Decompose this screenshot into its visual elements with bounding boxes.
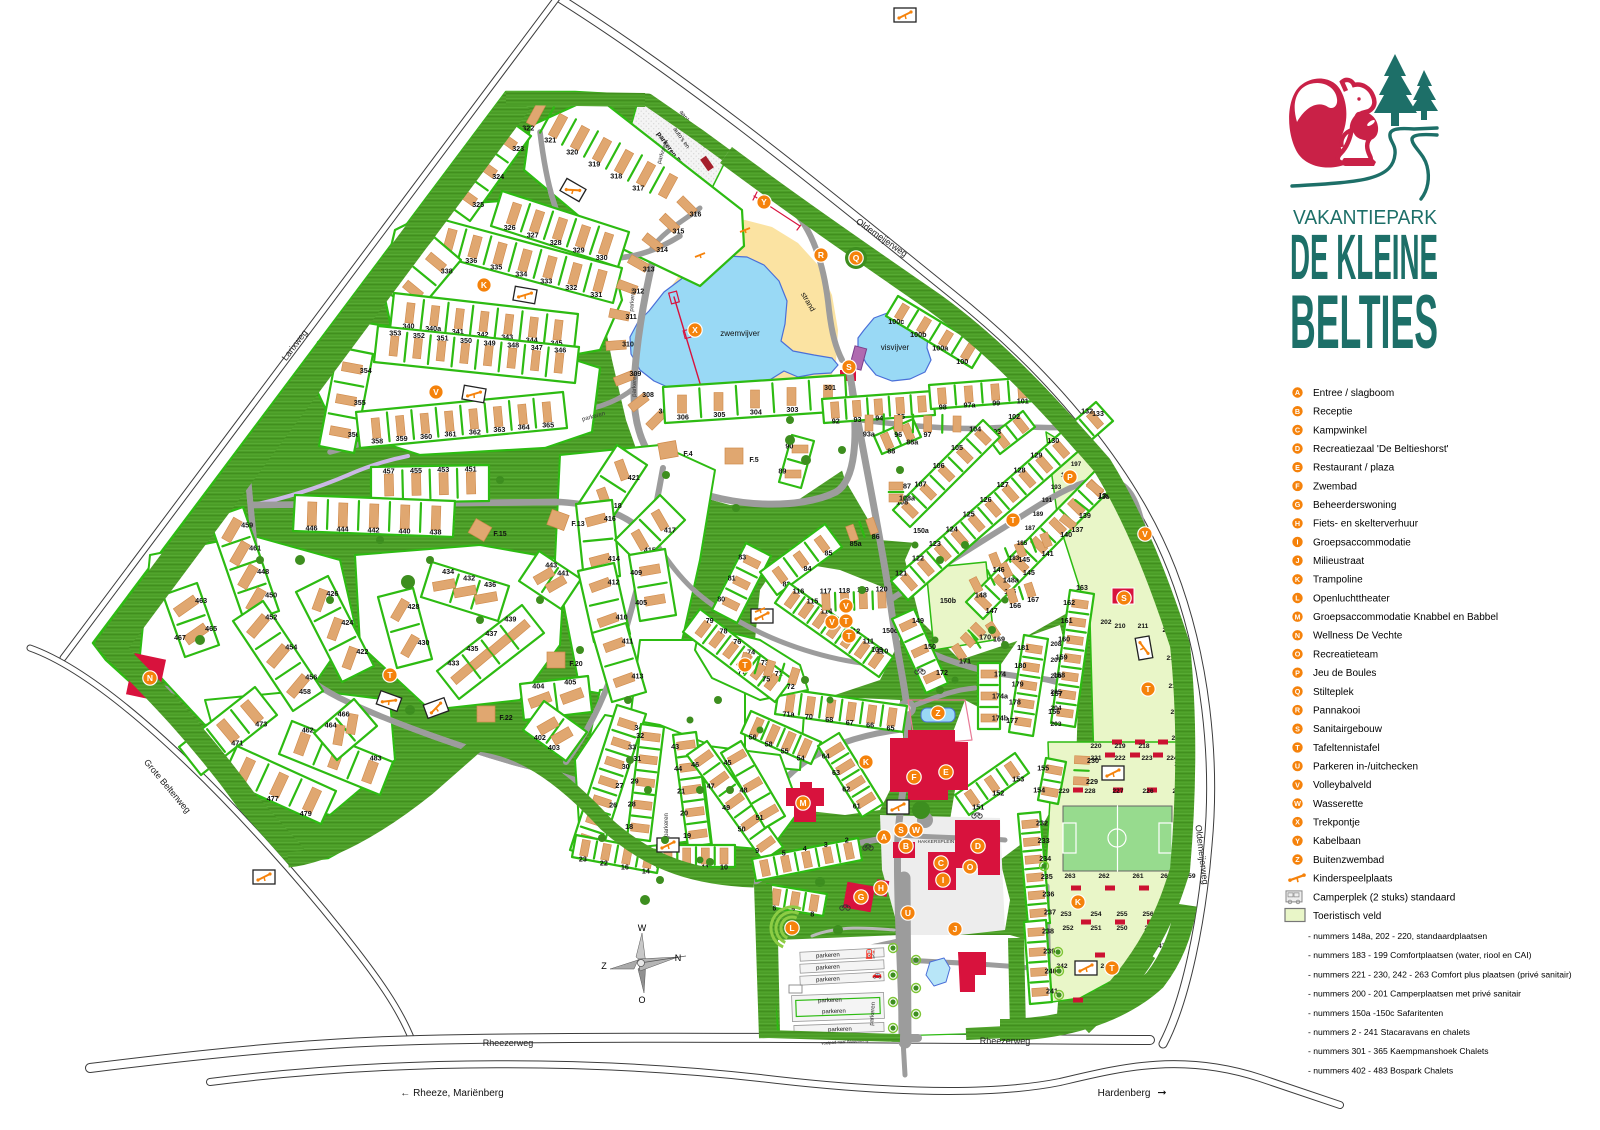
svg-text:80: 80: [717, 595, 725, 604]
svg-text:324: 324: [492, 172, 504, 181]
svg-text:Entree / slagboom: Entree / slagboom: [1313, 388, 1394, 399]
svg-text:75: 75: [762, 675, 770, 684]
svg-text:179: 179: [1012, 679, 1024, 688]
svg-text:33: 33: [628, 743, 636, 752]
svg-text:93: 93: [854, 415, 862, 424]
svg-text:P: P: [1295, 668, 1300, 677]
svg-text:78: 78: [720, 626, 728, 635]
svg-text:178: 178: [1009, 698, 1021, 707]
svg-text:464: 464: [325, 721, 337, 730]
svg-text:Sanitairgebouw: Sanitairgebouw: [1313, 724, 1383, 735]
svg-text:328: 328: [550, 238, 562, 247]
svg-text:155: 155: [1037, 764, 1049, 773]
svg-text:I: I: [1297, 538, 1299, 547]
svg-text:467: 467: [174, 635, 186, 642]
svg-text:333: 333: [540, 276, 552, 285]
svg-text:222: 222: [1114, 755, 1125, 762]
svg-text:466: 466: [338, 710, 350, 719]
svg-text:19: 19: [683, 831, 691, 840]
svg-text:411: 411: [622, 637, 634, 646]
svg-text:parkeren: parkeren: [816, 976, 840, 983]
svg-text:Groepsaccommodatie: Groepsaccommodatie: [1313, 537, 1411, 548]
svg-text:Stilteplek: Stilteplek: [1313, 687, 1355, 698]
svg-text:325: 325: [472, 200, 484, 209]
svg-text:162: 162: [1063, 598, 1075, 607]
svg-text:315: 315: [673, 229, 685, 236]
svg-text:403: 403: [548, 743, 560, 752]
svg-text:254: 254: [1090, 911, 1101, 918]
svg-text:107: 107: [915, 480, 927, 489]
svg-text:parkeren: parkeren: [816, 964, 840, 971]
svg-text:16: 16: [621, 862, 629, 871]
svg-text:147: 147: [986, 606, 998, 615]
svg-text:203: 203: [1050, 721, 1061, 728]
svg-text:235: 235: [1041, 872, 1053, 881]
svg-text:115: 115: [807, 597, 819, 606]
svg-text:K: K: [1075, 897, 1082, 907]
svg-text:363: 363: [493, 425, 505, 434]
svg-text:122: 122: [912, 554, 924, 563]
svg-text:E: E: [943, 767, 949, 777]
svg-text:93a: 93a: [863, 430, 876, 439]
svg-text:F.13: F.13: [571, 521, 584, 528]
svg-text:N: N: [147, 673, 153, 683]
svg-text:118: 118: [838, 586, 850, 595]
svg-text:K: K: [863, 757, 870, 767]
svg-text:parkeren: parkeren: [818, 998, 842, 1005]
svg-text:71a: 71a: [783, 709, 796, 718]
svg-text:K: K: [1295, 575, 1301, 584]
svg-text:Jeu de Boules: Jeu de Boules: [1313, 668, 1376, 679]
svg-text:154: 154: [1033, 786, 1045, 795]
svg-text:O: O: [967, 862, 974, 872]
svg-text:97a: 97a: [964, 401, 977, 410]
svg-text:410: 410: [616, 612, 628, 621]
svg-text:- nummers 183 - 199 Comfortpla: - nummers 183 - 199 Comfortplaatsen (wat…: [1308, 950, 1532, 960]
svg-text:H: H: [1295, 519, 1300, 528]
svg-text:145: 145: [1023, 568, 1035, 577]
svg-text:364: 364: [518, 423, 530, 432]
svg-text:255: 255: [1116, 911, 1127, 918]
svg-text:105: 105: [951, 443, 963, 452]
svg-text:170: 170: [979, 633, 991, 642]
svg-text:151: 151: [972, 803, 984, 812]
svg-text:86: 86: [872, 532, 880, 541]
svg-text:108a: 108a: [899, 494, 916, 503]
svg-text:45: 45: [724, 758, 732, 767]
svg-text:348: 348: [507, 341, 519, 350]
svg-text:139: 139: [1079, 511, 1091, 520]
svg-text:127: 127: [997, 480, 1009, 489]
svg-text:220: 220: [1090, 743, 1101, 750]
svg-text:A: A: [1295, 388, 1300, 397]
svg-text:parkeren: parkeren: [632, 373, 639, 397]
svg-text:349: 349: [484, 338, 496, 347]
svg-text:Tafeltennistafel: Tafeltennistafel: [1313, 743, 1380, 754]
svg-text:V: V: [843, 601, 849, 611]
svg-text:94: 94: [875, 414, 883, 423]
svg-text:197: 197: [1071, 461, 1082, 468]
svg-text:Restaurant / plaza: Restaurant / plaza: [1313, 463, 1395, 474]
svg-text:437: 437: [485, 629, 497, 638]
svg-text:Trampoline: Trampoline: [1313, 575, 1363, 586]
svg-text:79: 79: [706, 616, 714, 625]
svg-text:Kinderspeelplaats: Kinderspeelplaats: [1313, 874, 1393, 885]
svg-text:130: 130: [1047, 436, 1059, 445]
svg-text:229: 229: [1086, 777, 1098, 786]
svg-text:446: 446: [306, 524, 318, 533]
svg-text:Z: Z: [935, 708, 940, 718]
svg-text:355: 355: [354, 398, 366, 407]
svg-text:351: 351: [437, 333, 449, 342]
svg-text:- nummers 2 - 241 Stacaravans: - nummers 2 - 241 Stacaravans en chalets: [1308, 1027, 1470, 1037]
svg-text:202: 202: [1100, 619, 1111, 626]
svg-text:T: T: [1010, 515, 1016, 525]
svg-text:T: T: [1295, 743, 1300, 752]
svg-text:306: 306: [677, 413, 689, 422]
svg-text:183: 183: [1009, 555, 1020, 562]
svg-text:2: 2: [845, 836, 849, 845]
svg-text:O: O: [1295, 650, 1301, 659]
svg-text:326: 326: [504, 223, 516, 232]
svg-text:451: 451: [465, 465, 477, 474]
svg-text:320: 320: [566, 148, 578, 157]
svg-text:262: 262: [1098, 873, 1109, 880]
svg-text:X: X: [692, 325, 698, 335]
svg-text:83: 83: [738, 553, 746, 562]
svg-text:F.22: F.22: [499, 715, 512, 722]
svg-text:Y: Y: [1295, 836, 1300, 845]
svg-text:46: 46: [691, 760, 699, 769]
svg-text:329: 329: [573, 245, 585, 254]
svg-text:140: 140: [1060, 530, 1072, 539]
svg-text:Z: Z: [1295, 855, 1300, 864]
svg-text:141: 141: [1042, 549, 1054, 558]
svg-text:174a: 174a: [992, 692, 1009, 701]
svg-text:84: 84: [804, 564, 812, 573]
svg-text:76: 76: [733, 637, 741, 646]
svg-text:458: 458: [299, 689, 311, 696]
svg-text:99: 99: [992, 399, 1000, 408]
svg-text:N: N: [675, 953, 682, 963]
svg-text:Openluchttheater: Openluchttheater: [1313, 593, 1390, 604]
svg-text:439: 439: [504, 614, 516, 623]
svg-text:210: 210: [1114, 623, 1125, 630]
svg-text:362: 362: [469, 427, 481, 436]
svg-text:70: 70: [805, 712, 813, 721]
svg-text:412: 412: [608, 577, 620, 586]
svg-text:237: 237: [1044, 907, 1056, 916]
svg-text:65: 65: [887, 723, 895, 732]
svg-text:50: 50: [738, 824, 746, 833]
svg-text:346: 346: [554, 346, 566, 355]
svg-text:323: 323: [512, 144, 524, 153]
svg-text:409: 409: [630, 568, 642, 577]
svg-text:97: 97: [924, 430, 932, 439]
svg-text:⛽: ⛽: [865, 948, 876, 959]
svg-text:129: 129: [1030, 451, 1042, 460]
svg-text:48: 48: [740, 786, 748, 795]
svg-text:68: 68: [825, 715, 833, 724]
svg-text:U: U: [1295, 762, 1300, 771]
svg-text:465: 465: [205, 624, 217, 633]
svg-text:← Rheeze, Mariënberg: ← Rheeze, Mariënberg: [400, 1088, 503, 1099]
svg-text:161: 161: [1061, 616, 1073, 625]
svg-text:434: 434: [442, 567, 454, 576]
svg-text:W: W: [912, 825, 921, 835]
svg-text:352: 352: [413, 331, 425, 340]
svg-text:58: 58: [765, 740, 773, 749]
svg-text:174b: 174b: [992, 714, 1009, 723]
svg-text:102: 102: [1008, 412, 1020, 421]
svg-text:O: O: [638, 995, 645, 1005]
svg-text:85: 85: [825, 548, 833, 557]
svg-text:456: 456: [305, 673, 317, 682]
svg-text:B: B: [903, 841, 909, 851]
svg-text:100b: 100b: [910, 330, 927, 339]
svg-text:L: L: [789, 923, 794, 933]
svg-text:314: 314: [656, 247, 668, 254]
svg-text:405: 405: [635, 598, 647, 607]
svg-text:263: 263: [1064, 873, 1075, 880]
svg-text:421: 421: [628, 473, 640, 482]
svg-text:454: 454: [285, 643, 297, 652]
svg-text:206: 206: [1050, 673, 1061, 680]
svg-text:Beheerderswoning: Beheerderswoning: [1313, 500, 1396, 511]
svg-text:317: 317: [632, 184, 644, 193]
svg-text:204: 204: [1050, 705, 1061, 712]
svg-text:Milieustraat: Milieustraat: [1313, 556, 1364, 567]
svg-text:146: 146: [993, 565, 1005, 574]
svg-text:319: 319: [588, 160, 600, 169]
svg-text:433: 433: [447, 658, 459, 667]
svg-text:166: 166: [1009, 601, 1021, 610]
svg-text:221: 221: [1090, 755, 1101, 762]
svg-text:477: 477: [267, 794, 279, 803]
svg-text:360: 360: [420, 432, 432, 441]
svg-text:424: 424: [341, 618, 353, 627]
svg-text:Wasserette: Wasserette: [1313, 799, 1364, 810]
svg-text:Trekpontje: Trekpontje: [1313, 818, 1360, 829]
svg-text:228: 228: [1084, 788, 1095, 795]
svg-text:55: 55: [781, 747, 789, 756]
svg-text:Fiets- en skelterverhuur: Fiets- en skelterverhuur: [1313, 519, 1419, 530]
svg-text:26: 26: [609, 801, 617, 810]
svg-text:438: 438: [430, 528, 442, 537]
svg-text:31: 31: [633, 754, 641, 763]
svg-text:413: 413: [632, 672, 644, 681]
svg-text:Groepsaccommodatie Knabbel en: Groepsaccommodatie Knabbel en Babbel: [1313, 612, 1498, 623]
svg-text:335: 335: [490, 263, 502, 272]
svg-text:Pannakooi: Pannakooi: [1313, 706, 1360, 717]
svg-text:133: 133: [1092, 411, 1104, 418]
svg-text:109: 109: [871, 647, 883, 654]
svg-text:149: 149: [912, 616, 924, 625]
svg-text:🚗: 🚗: [872, 970, 882, 979]
svg-text:441: 441: [557, 569, 569, 578]
svg-text:187: 187: [1025, 525, 1036, 532]
svg-text:T: T: [1109, 963, 1115, 973]
svg-text:117: 117: [820, 587, 832, 596]
svg-text:3: 3: [824, 840, 828, 849]
svg-text:414: 414: [608, 554, 620, 563]
svg-text:125: 125: [963, 510, 975, 519]
svg-text:327: 327: [527, 230, 539, 239]
svg-text:32: 32: [636, 731, 644, 740]
svg-text:123: 123: [929, 539, 941, 548]
svg-text:- nummers 150a -150c Safariten: - nummers 150a -150c Safaritenten: [1308, 1008, 1443, 1018]
svg-text:334: 334: [515, 270, 527, 279]
svg-text:6: 6: [772, 903, 776, 912]
svg-text:Rheezerweg: Rheezerweg: [980, 1036, 1031, 1046]
svg-text:87: 87: [903, 482, 911, 491]
svg-text:zwemvijver: zwemvijver: [720, 329, 760, 338]
svg-text:N: N: [1295, 631, 1300, 640]
svg-text:457: 457: [383, 467, 395, 476]
svg-text:250: 250: [1116, 925, 1127, 932]
svg-text:417: 417: [664, 525, 676, 534]
svg-text:180: 180: [1014, 661, 1026, 670]
svg-text:226: 226: [1142, 788, 1153, 795]
svg-text:331: 331: [590, 290, 602, 299]
svg-text:96: 96: [894, 430, 902, 439]
svg-text:Kampwinkel: Kampwinkel: [1313, 425, 1367, 436]
svg-text:428: 428: [408, 602, 420, 611]
svg-text:361: 361: [445, 430, 457, 439]
svg-text:Y: Y: [761, 197, 767, 207]
svg-text:208: 208: [1050, 641, 1061, 648]
svg-text:Camperplek (2 stuks) standaard: Camperplek (2 stuks) standaard: [1313, 892, 1455, 903]
svg-text:321: 321: [544, 136, 556, 145]
svg-text:365: 365: [542, 420, 554, 429]
svg-text:455: 455: [410, 466, 422, 475]
svg-text:150b: 150b: [940, 598, 956, 605]
svg-text:28: 28: [628, 799, 636, 808]
svg-text:Toeristisch veld: Toeristisch veld: [1313, 911, 1381, 922]
svg-text:359: 359: [396, 434, 408, 443]
svg-text:233: 233: [1038, 836, 1050, 845]
svg-text:261: 261: [1132, 873, 1143, 880]
svg-text:Hardenberg: Hardenberg: [1098, 1088, 1151, 1099]
svg-text:F.15: F.15: [493, 531, 506, 538]
svg-text:S: S: [846, 362, 852, 372]
svg-text:V: V: [1142, 529, 1148, 539]
svg-text:100c: 100c: [888, 317, 904, 326]
svg-text:M: M: [1295, 612, 1301, 621]
svg-text:P: P: [1067, 472, 1073, 482]
svg-text:56: 56: [749, 733, 757, 742]
svg-text:124: 124: [946, 524, 958, 533]
svg-text:I: I: [942, 875, 944, 885]
svg-text:116: 116: [793, 587, 805, 596]
svg-text:C: C: [938, 858, 944, 868]
svg-text:S: S: [1295, 724, 1300, 733]
svg-text:51: 51: [756, 813, 764, 822]
svg-text:88a: 88a: [906, 438, 919, 447]
svg-text:185: 185: [1017, 540, 1028, 547]
svg-text:V: V: [829, 617, 835, 627]
svg-text:A: A: [881, 832, 887, 842]
svg-text:416: 416: [604, 514, 616, 523]
svg-text:450: 450: [265, 590, 277, 599]
svg-text:Q: Q: [853, 253, 860, 263]
svg-text:HAKKERSPLEIN: HAKKERSPLEIN: [918, 839, 955, 845]
svg-text:223: 223: [1141, 755, 1152, 762]
svg-text:M: M: [799, 798, 806, 808]
svg-text:137: 137: [1071, 525, 1083, 534]
svg-text:85a: 85a: [850, 539, 863, 548]
svg-text:120: 120: [876, 585, 888, 594]
svg-text:332: 332: [565, 283, 577, 292]
svg-text:444: 444: [337, 525, 349, 534]
svg-text:219: 219: [1114, 743, 1125, 750]
svg-text:23: 23: [579, 854, 587, 863]
svg-text:148: 148: [975, 590, 987, 599]
svg-text:98: 98: [939, 403, 947, 412]
svg-text:X: X: [1295, 818, 1300, 827]
svg-text:H: H: [878, 883, 884, 893]
svg-text:J: J: [953, 924, 958, 934]
svg-text:Wellness De Vechte: Wellness De Vechte: [1313, 631, 1403, 642]
svg-text:167: 167: [1027, 595, 1039, 604]
svg-text:- nummers 148a, 202 - 220, sta: - nummers 148a, 202 - 220, standaardplaa…: [1308, 931, 1487, 941]
svg-text:462: 462: [302, 726, 314, 735]
svg-text:- nummers 221 - 230, 242 - 263: - nummers 221 - 230, 242 - 263 Comfort p…: [1308, 969, 1572, 979]
svg-text:BELTIES: BELTIES: [1290, 280, 1438, 365]
svg-text:318: 318: [610, 172, 622, 181]
svg-text:14: 14: [642, 866, 650, 875]
svg-text:9: 9: [755, 846, 759, 855]
svg-text:121: 121: [895, 569, 907, 578]
svg-text:44: 44: [674, 764, 682, 773]
svg-text:232: 232: [1036, 818, 1048, 827]
svg-text:308: 308: [642, 392, 654, 399]
svg-text:313: 313: [643, 267, 655, 274]
svg-text:463: 463: [195, 596, 207, 605]
svg-text:89: 89: [778, 467, 786, 476]
svg-text:S: S: [898, 825, 904, 835]
svg-text:207: 207: [1050, 657, 1061, 664]
svg-text:Parkeren in-/uitchecken: Parkeren in-/uitchecken: [1313, 762, 1418, 773]
svg-text:358: 358: [371, 436, 383, 445]
svg-text:parkeren: parkeren: [664, 813, 670, 837]
svg-text:479: 479: [300, 809, 312, 818]
svg-text:➞: ➞: [1157, 1087, 1166, 1099]
svg-text:404: 404: [532, 682, 544, 691]
svg-text:47: 47: [707, 781, 715, 790]
svg-text:Volleybalveld: Volleybalveld: [1313, 780, 1371, 791]
svg-text:100a: 100a: [932, 344, 949, 353]
svg-text:350: 350: [460, 336, 472, 345]
svg-text:448: 448: [257, 567, 269, 576]
svg-text:20: 20: [680, 809, 688, 818]
svg-text:88: 88: [887, 447, 895, 456]
svg-text:Rheezerweg: Rheezerweg: [483, 1038, 534, 1048]
svg-text:442: 442: [368, 526, 380, 535]
svg-text:R: R: [818, 250, 824, 260]
svg-text:310: 310: [622, 341, 634, 348]
svg-text:Recreatieteam: Recreatieteam: [1313, 649, 1378, 660]
svg-text:81: 81: [728, 574, 736, 583]
svg-text:435: 435: [466, 644, 478, 653]
svg-text:191: 191: [1042, 497, 1053, 504]
svg-text:F: F: [911, 772, 916, 782]
svg-text:- nummers 200 - 201 Camperplaa: - nummers 200 - 201 Camperplaatsen met p…: [1308, 989, 1521, 999]
svg-text:parkeren: parkeren: [822, 1009, 846, 1016]
svg-text:Recreatiezaal 'De Beltieshorst: Recreatiezaal 'De Beltieshorst': [1313, 444, 1449, 455]
svg-text:22: 22: [600, 858, 608, 867]
svg-text:152: 152: [992, 789, 1004, 798]
